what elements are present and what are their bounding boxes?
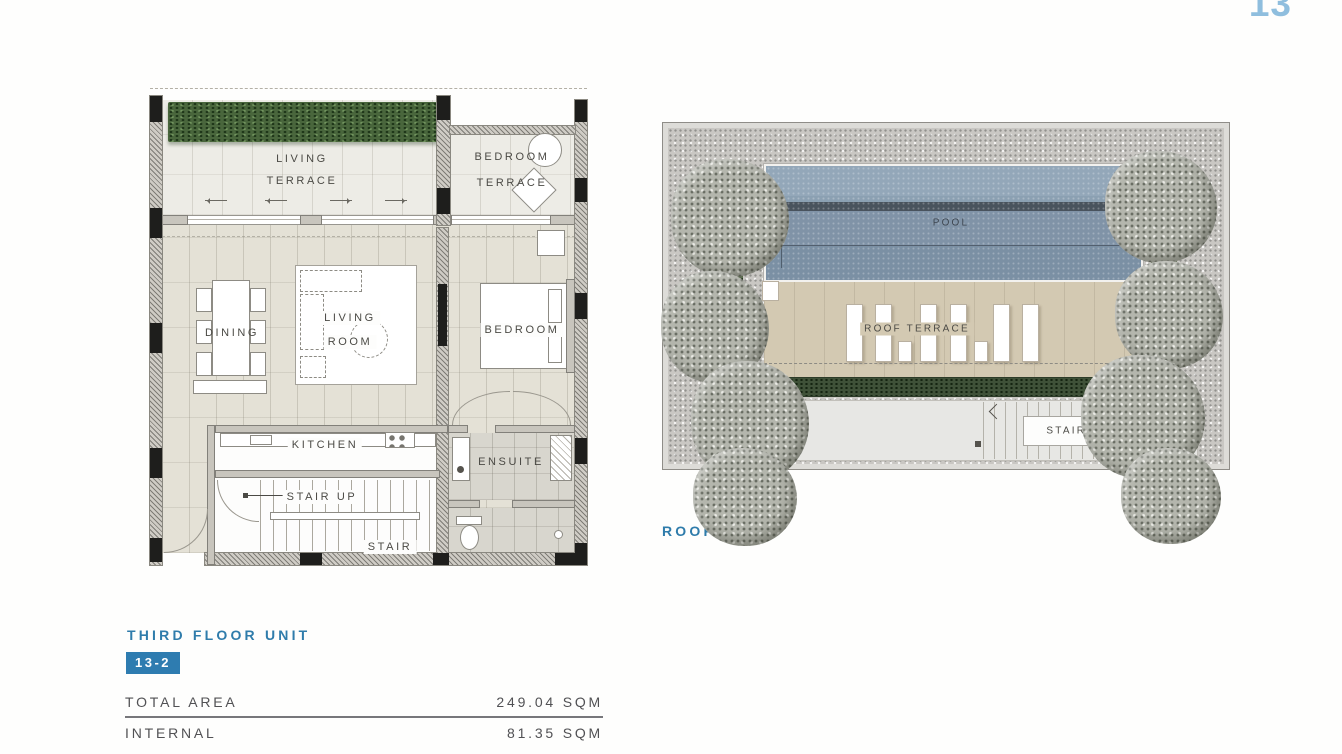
hedge-planter — [168, 102, 440, 142]
wall-stair-left — [207, 425, 215, 565]
wc-fixture — [554, 530, 563, 539]
wall-kitchen-stair — [215, 470, 440, 478]
interior-dashed-line — [162, 236, 575, 237]
tree — [693, 448, 797, 546]
label-stair: STAIR — [364, 540, 417, 554]
wall-right — [575, 100, 587, 565]
column-partition — [438, 284, 447, 346]
label-stair-up: STAIR UP — [283, 490, 362, 504]
column — [575, 543, 587, 565]
dining-chair — [250, 352, 266, 376]
wall-ensuite-wc-a — [448, 500, 480, 508]
tree — [1121, 448, 1221, 544]
column — [150, 96, 162, 122]
dining-chair — [250, 288, 266, 312]
column — [433, 553, 449, 565]
toilet-bowl — [460, 525, 479, 550]
wall-ensuite-wc-b — [512, 500, 575, 508]
label-kitchen: KITCHEN — [288, 438, 362, 452]
area-label-total: TOTAL AREA — [125, 694, 238, 710]
stair-handrail — [270, 512, 420, 520]
sunbed — [993, 304, 1010, 362]
wall-bottom — [205, 553, 575, 565]
label-bedroom: BEDROOM — [480, 323, 563, 337]
column — [437, 188, 450, 214]
pillow — [548, 289, 562, 323]
slide-arrow-icon — [205, 194, 227, 201]
brochure-page: 13 — [0, 0, 1342, 754]
stove-icon — [385, 432, 415, 448]
wall-stub — [550, 215, 575, 225]
column — [150, 538, 162, 562]
label-bedroom-terrace-2: TERRACE — [477, 177, 548, 189]
wall-stub — [300, 215, 322, 225]
sofa — [300, 270, 362, 292]
label-bedroom-terrace-1: BEDROOM — [474, 151, 549, 163]
label-dining: DINING — [205, 327, 259, 339]
area-value-total: 249.04 SQM — [496, 694, 603, 710]
side-table — [898, 341, 912, 362]
terrace-dashed-line — [764, 363, 1143, 364]
slide-arrow-icon — [330, 194, 352, 201]
column — [575, 438, 587, 464]
column — [555, 553, 575, 565]
label-pool: POOL — [933, 218, 970, 229]
dining-chair — [196, 288, 212, 312]
area-row-internal: INTERNAL 81.35 SQM — [125, 725, 603, 741]
sliding-door-track — [162, 215, 575, 225]
area-table: TOTAL AREA 249.04 SQM INTERNAL 81.35 SQM — [125, 694, 603, 741]
armchair — [300, 356, 326, 378]
label-roof-terrace: ROOF TERRACE — [860, 323, 974, 336]
tree — [671, 159, 789, 277]
dining-bench — [193, 380, 267, 394]
label-living-room-2: ROOM — [324, 335, 377, 349]
floor-plan-third-floor: LIVING TERRACE BEDROOM TERRACE DINING LI… — [150, 88, 587, 570]
pool-lane-line — [781, 245, 1142, 268]
sunbed — [1022, 304, 1039, 362]
column — [437, 96, 450, 120]
page-number: 13 — [1249, 0, 1292, 25]
area-row-total: TOTAL AREA 249.04 SQM — [125, 694, 603, 710]
walkway-marker — [975, 441, 981, 447]
unit-number-badge: 13-2 — [126, 652, 180, 674]
slide-arrow-icon — [265, 194, 287, 201]
column — [575, 100, 587, 122]
tree — [1115, 261, 1223, 369]
wall-ensuite-top-b — [495, 425, 575, 433]
column — [300, 553, 322, 565]
slide-arrow-icon — [385, 194, 407, 201]
toilet-tank — [456, 516, 482, 525]
area-value-internal: 81.35 SQM — [507, 725, 603, 741]
bed-headboard — [566, 279, 575, 373]
label-living-room-1: LIVING — [320, 311, 380, 325]
pool-step — [762, 281, 779, 301]
column — [575, 293, 587, 319]
column — [150, 208, 162, 238]
floor-plan-title: THIRD FLOOR UNIT — [127, 627, 310, 643]
area-table-rule — [125, 716, 603, 718]
area-label-internal: INTERNAL — [125, 725, 217, 741]
side-table — [974, 341, 988, 362]
stair-direction-origin — [243, 493, 248, 498]
sink-drain — [457, 466, 464, 473]
setback-dashed-line — [150, 88, 587, 89]
wall-bedroom-terrace-top — [450, 126, 575, 134]
bedroom-desk — [537, 230, 565, 256]
green-planter-strip — [783, 377, 1128, 397]
wall-stub — [162, 215, 188, 225]
vanity-sink — [452, 437, 470, 481]
column — [575, 178, 587, 202]
tree — [1105, 151, 1217, 263]
dining-chair — [196, 352, 212, 376]
wall-ensuite-top-a — [448, 425, 468, 433]
label-ensuite: ENSUITE — [478, 456, 544, 468]
shower — [550, 435, 572, 481]
column — [150, 448, 162, 478]
roof-plan: POOL ROOF TERRACE STAIR DOWN — [662, 122, 1230, 470]
column — [150, 323, 162, 353]
label-living-terrace-2: TERRACE — [267, 175, 338, 187]
kitchen-sink — [250, 435, 272, 445]
label-living-terrace-1: LIVING — [276, 153, 328, 165]
